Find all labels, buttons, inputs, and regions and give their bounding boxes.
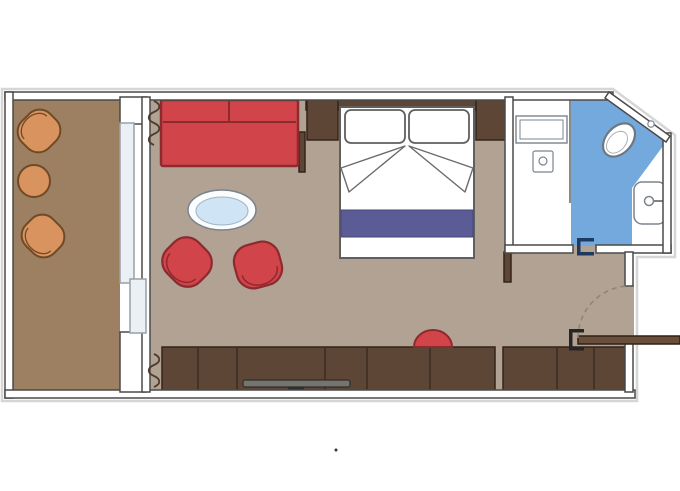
bathroom-door-bar-side bbox=[577, 238, 581, 256]
coffee-table-top bbox=[196, 197, 248, 225]
caption-dot bbox=[335, 449, 338, 452]
wall-bathroom-bottom-left bbox=[505, 245, 573, 253]
sliding-door-panel-upper bbox=[120, 123, 134, 283]
bed-pillow-right bbox=[409, 110, 469, 143]
bed-blanket bbox=[341, 210, 473, 237]
balcony-table bbox=[18, 165, 50, 197]
wall-right bbox=[663, 133, 671, 253]
nightstand-right bbox=[476, 98, 506, 140]
shower-drain-hole bbox=[539, 157, 547, 165]
floor-plan-image bbox=[0, 0, 680, 491]
tv bbox=[243, 380, 350, 387]
side-console bbox=[299, 132, 305, 172]
entry-doorway-floor bbox=[625, 285, 634, 343]
wall-bottom bbox=[5, 390, 635, 398]
cabinet-row-right bbox=[503, 347, 625, 392]
wall-entry-lower bbox=[625, 342, 633, 392]
toilet-flush-button bbox=[648, 121, 654, 127]
bed-pillow-left bbox=[345, 110, 405, 143]
entrance-door-leaf bbox=[578, 336, 680, 344]
nightstand-left bbox=[307, 98, 338, 140]
wall-top bbox=[5, 92, 613, 100]
washbasin-drain bbox=[645, 197, 654, 206]
wall-entry-upper bbox=[625, 252, 633, 286]
entry-jamb-side bbox=[569, 329, 573, 351]
wall-bathroom-left bbox=[505, 97, 513, 253]
wall-stub bbox=[504, 252, 511, 282]
wall-left bbox=[5, 92, 13, 398]
sliding-door-panel-lower bbox=[130, 279, 146, 333]
floor-plan-svg bbox=[0, 0, 680, 491]
